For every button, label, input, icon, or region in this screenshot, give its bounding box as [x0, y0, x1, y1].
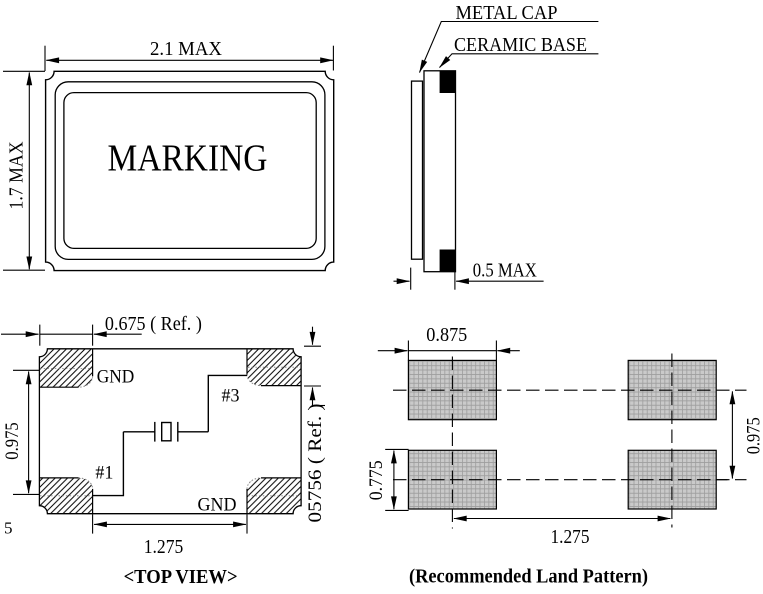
svg-text:CERAMIC BASE: CERAMIC BASE — [454, 34, 587, 56]
svg-text:0.775: 0.775 — [366, 460, 387, 500]
svg-text:(Recommended Land Pattern): (Recommended Land Pattern) — [409, 567, 648, 588]
svg-text:1.275: 1.275 — [144, 536, 184, 558]
svg-text:0.5 MAX: 0.5 MAX — [473, 260, 537, 282]
svg-text:GND: GND — [198, 495, 237, 516]
svg-text:GND: GND — [97, 367, 135, 388]
svg-text:#3: #3 — [222, 386, 240, 407]
svg-text:2.1 MAX: 2.1 MAX — [150, 38, 223, 60]
svg-text:0.975: 0.975 — [744, 417, 763, 454]
svg-text:METAL CAP: METAL CAP — [456, 2, 558, 24]
svg-text:0.975: 0.975 — [2, 422, 23, 460]
svg-text:1.275: 1.275 — [551, 526, 590, 548]
svg-text:05756 ( Ref. ): 05756 ( Ref. ) — [305, 404, 326, 523]
svg-text:#1: #1 — [95, 463, 113, 484]
svg-text:0.675 ( Ref. ): 0.675 ( Ref. ) — [105, 313, 202, 335]
svg-text:5: 5 — [4, 519, 13, 538]
svg-text:<TOP VIEW>: <TOP VIEW> — [124, 567, 238, 588]
svg-text:MARKING: MARKING — [108, 138, 268, 180]
svg-text:1.7 MAX: 1.7 MAX — [6, 141, 28, 209]
svg-text:0.875: 0.875 — [426, 324, 467, 346]
